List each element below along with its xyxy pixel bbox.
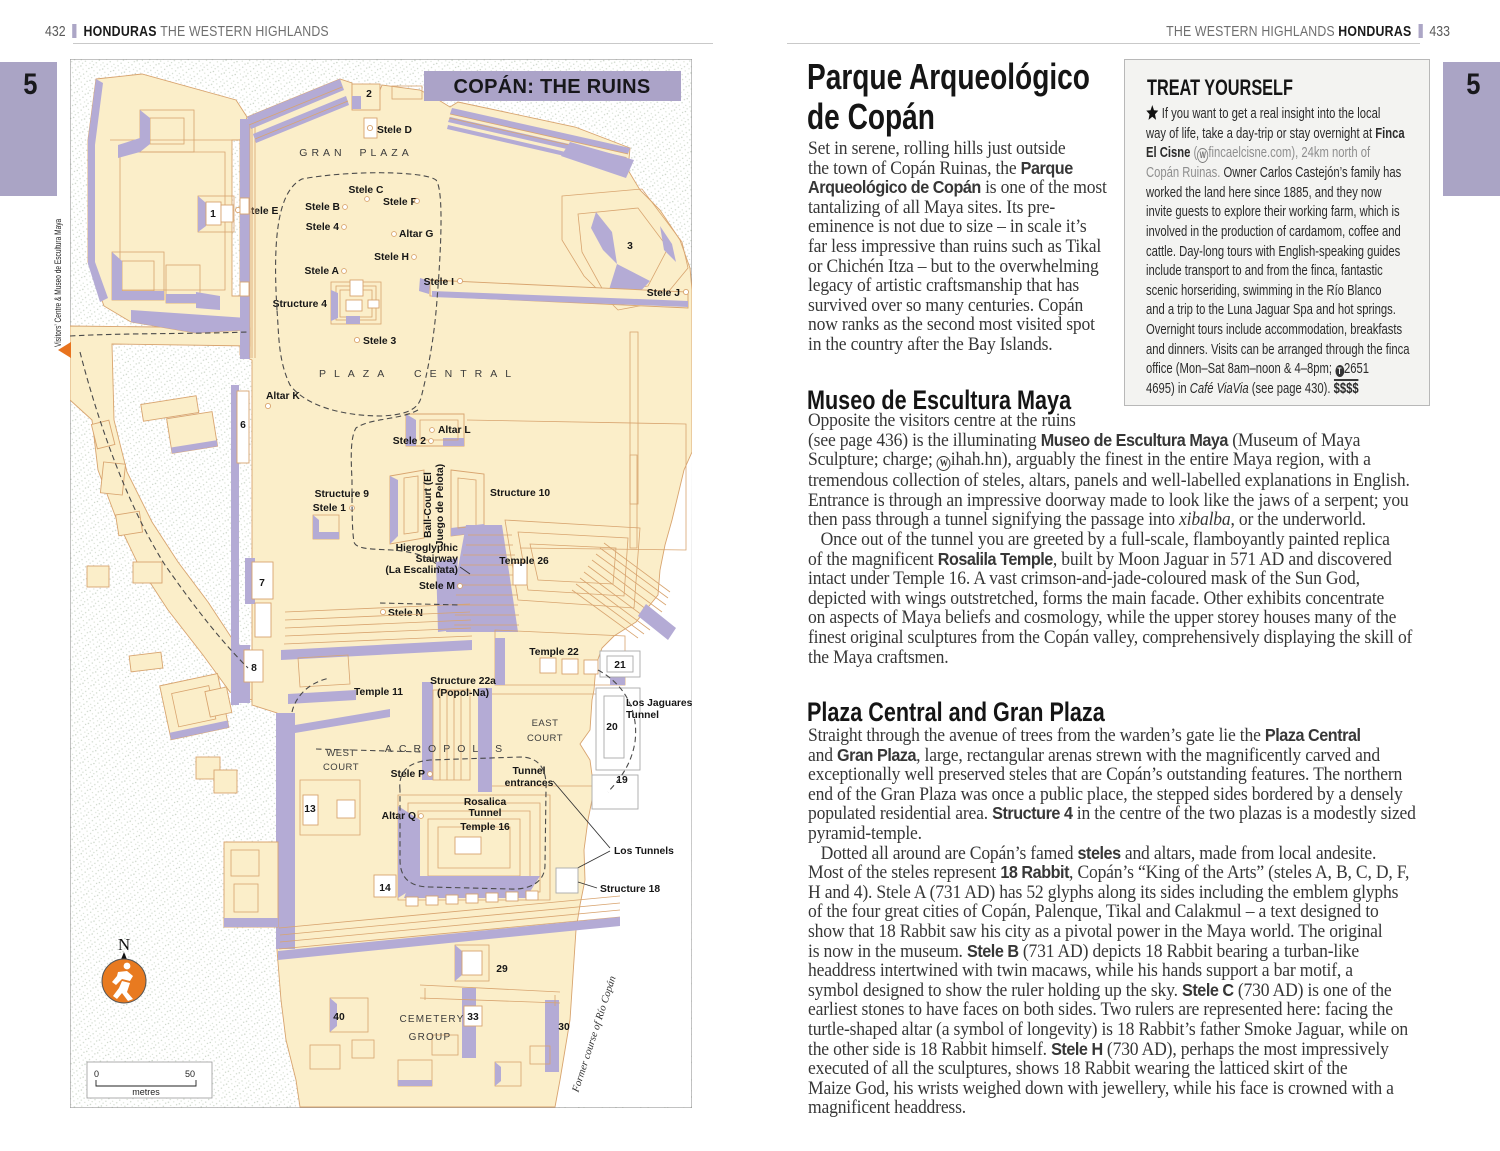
svg-text:Tunnel: Tunnel <box>513 766 546 777</box>
svg-text:Tunnel: Tunnel <box>469 808 502 819</box>
svg-text:13: 13 <box>304 804 316 815</box>
svg-text:7: 7 <box>259 578 265 589</box>
svg-text:29: 29 <box>496 964 508 975</box>
svg-text:30: 30 <box>558 1022 570 1033</box>
svg-text:Stele C: Stele C <box>349 185 384 196</box>
svg-text:40: 40 <box>333 1012 345 1023</box>
svg-text:14: 14 <box>379 883 391 894</box>
svg-text:WEST: WEST <box>326 748 355 759</box>
svg-text:Altar K: Altar K <box>266 391 300 402</box>
svg-text:6: 6 <box>240 420 246 431</box>
svg-text:metres: metres <box>132 1087 160 1097</box>
svg-text:Ball-Court (El: Ball-Court (El <box>423 472 434 538</box>
svg-text:Stele P: Stele P <box>391 769 425 780</box>
svg-text:8: 8 <box>251 663 257 674</box>
svg-text:Stairway: Stairway <box>416 554 459 565</box>
svg-text:Stele 4: Stele 4 <box>306 222 339 233</box>
svg-text:Stele B: Stele B <box>305 202 340 213</box>
svg-text:Stele 3: Stele 3 <box>363 336 396 347</box>
svg-text:Structure 18: Structure 18 <box>600 884 660 895</box>
svg-text:EAST: EAST <box>532 718 559 729</box>
svg-text:21: 21 <box>614 660 626 671</box>
svg-text:COURT: COURT <box>323 762 359 773</box>
svg-text:CEMETERY: CEMETERY <box>400 1014 465 1025</box>
svg-text:20: 20 <box>606 722 618 733</box>
svg-text:Stele F: Stele F <box>383 197 417 208</box>
svg-text:Altar Q: Altar Q <box>382 811 416 822</box>
svg-text:(Popol-Na): (Popol-Na) <box>437 688 489 699</box>
svg-text:Stele 2: Stele 2 <box>393 436 426 447</box>
svg-text:Stele 1: Stele 1 <box>313 503 346 514</box>
svg-text:Structure 4: Structure 4 <box>273 299 328 310</box>
svg-text:(La Escalinata): (La Escalinata) <box>385 565 458 576</box>
svg-text:COURT: COURT <box>527 733 563 744</box>
svg-text:N: N <box>118 935 130 954</box>
svg-text:GROUP: GROUP <box>409 1032 452 1043</box>
svg-text:50: 50 <box>185 1069 195 1079</box>
svg-text:Structure 22a: Structure 22a <box>430 676 496 687</box>
svg-text:Structure 10: Structure 10 <box>490 488 550 499</box>
svg-text:Rosalica: Rosalica <box>464 797 507 808</box>
svg-text:Stele H: Stele H <box>374 252 409 263</box>
svg-text:GRAN PLAZA: GRAN PLAZA <box>299 147 412 159</box>
svg-text:Stele A: Stele A <box>304 266 339 277</box>
svg-text:Stele N: Stele N <box>388 608 423 619</box>
svg-text:Stele D: Stele D <box>377 125 412 136</box>
svg-text:Tunnel: Tunnel <box>626 710 659 721</box>
svg-text:Temple 22: Temple 22 <box>529 647 579 658</box>
svg-text:2: 2 <box>366 89 372 100</box>
svg-text:Los Jaguares: Los Jaguares <box>626 698 692 709</box>
svg-text:Temple 26: Temple 26 <box>499 556 549 567</box>
svg-text:1: 1 <box>210 209 216 220</box>
svg-text:COPÁN: THE RUINS: COPÁN: THE RUINS <box>453 75 650 98</box>
svg-text:Juego de Pelota): Juego de Pelota) <box>435 464 446 546</box>
svg-text:Temple 11: Temple 11 <box>354 687 403 698</box>
svg-text:3: 3 <box>627 241 633 252</box>
svg-text:Structure 9: Structure 9 <box>315 489 370 500</box>
svg-text:Stele M: Stele M <box>419 581 455 592</box>
svg-text:33: 33 <box>467 1012 479 1023</box>
svg-text:Stele J: Stele J <box>647 288 680 299</box>
svg-text:Altar G: Altar G <box>399 229 433 240</box>
svg-text:Altar L: Altar L <box>438 425 471 436</box>
svg-text:Temple 16: Temple 16 <box>460 822 510 833</box>
svg-text:Los Tunnels: Los Tunnels <box>614 846 674 857</box>
svg-text:Hieroglyphic: Hieroglyphic <box>396 543 459 554</box>
svg-text:0: 0 <box>94 1069 99 1079</box>
svg-text:PLAZA CENTRAL: PLAZA CENTRAL <box>319 368 519 380</box>
